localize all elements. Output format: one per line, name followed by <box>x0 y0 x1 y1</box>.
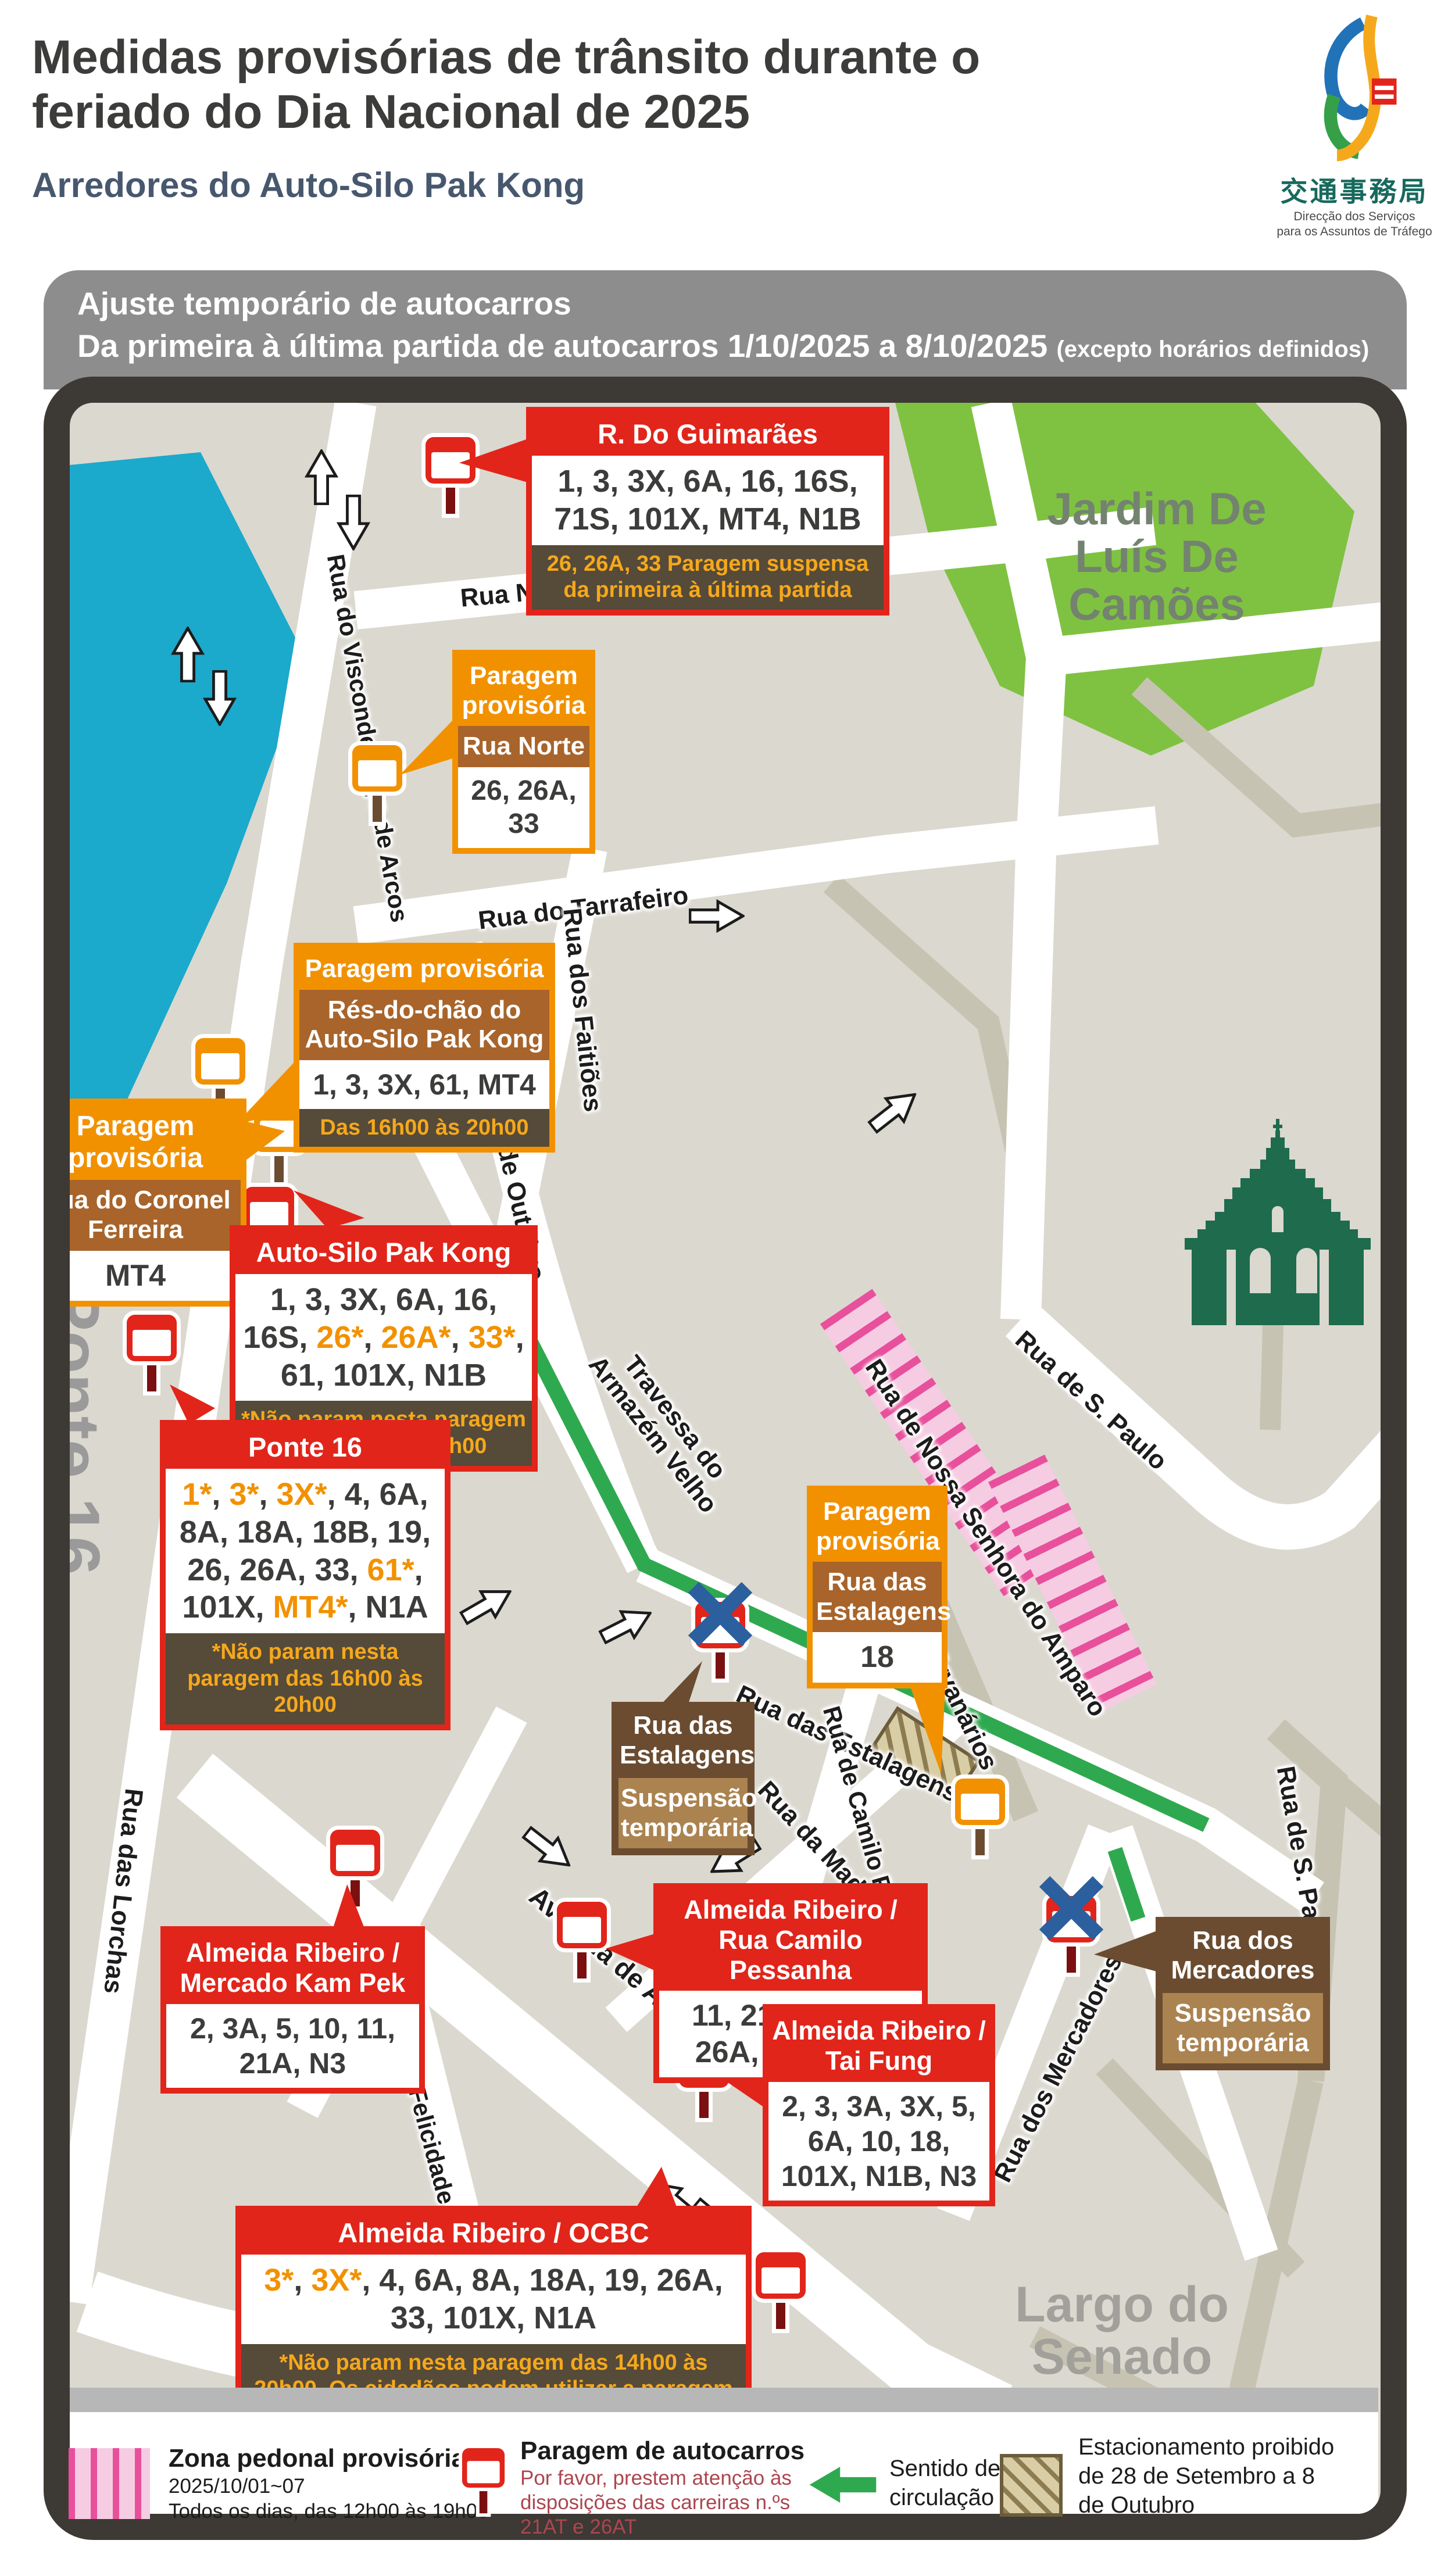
callout-routes: 1, 3, 3X, 6A, 16, 16S, 26*, 26A*, 33*, 6… <box>235 1274 532 1401</box>
suspended-bus-stop-icon <box>1046 1896 1096 1977</box>
callout-title: Rua dos Mercadores <box>1163 1924 1323 1987</box>
callout-street: Rua Norte <box>458 726 589 767</box>
bus-stop-icon <box>426 437 475 518</box>
direction-arrow-icon <box>335 495 371 550</box>
callout-routes: 1, 3, 3X, 6A, 16, 16S, 71S, 101X, MT4, N… <box>532 456 884 545</box>
bus-stop-icon <box>330 1830 380 1911</box>
temp-bus-stop-icon <box>955 1779 1005 1860</box>
bus-stop-icon <box>557 1902 607 1983</box>
legend-estacionamento-line2: de 28 de Setembro a 8 <box>1078 2461 1334 2491</box>
callout-estalagens-18: Paragem provisória Rua das Estalagens 18 <box>807 1486 948 1688</box>
callout-rua-norte: Paragem provisória Rua Norte 26, 26A, 33 <box>452 650 595 854</box>
bus-stop-legend-icon <box>462 2448 505 2517</box>
callout-street: Rés-do-chão do Auto-Silo Pak Kong <box>299 990 549 1060</box>
legend-paragem-note1: Por favor, prestem atenção às <box>520 2466 805 2491</box>
page-subtitle: Arredores do Auto-Silo Pak Kong <box>32 165 585 205</box>
no-parking-swatch <box>1000 2454 1063 2517</box>
legend-paragem: Paragem de autocarros Por favor, prestem… <box>520 2437 805 2539</box>
bus-stop-icon <box>127 1315 177 1396</box>
callout-title: Paragem provisória <box>299 949 549 990</box>
page-title-line2: feriado do Dia Nacional de 2025 <box>32 88 750 136</box>
callout-status: Suspensão temporária <box>618 1778 748 1848</box>
callout-kam-pek: Almeida Ribeiro / Mercado Kam Pek 2, 3A,… <box>160 1926 425 2094</box>
suspended-bus-stop-icon <box>695 1602 745 1683</box>
callout-coronel-ferreira: Paragem provisória Rua do Coronel Ferrei… <box>44 1099 246 1307</box>
callout-estalagens-suspensao: Rua das Estalagens Suspensão temporária <box>612 1702 755 1855</box>
dsat-logo-pt2: para os Assuntos de Tráfego <box>1276 224 1433 239</box>
callout-title: R. Do Guimarães <box>532 413 884 456</box>
callout-title: Paragem provisória <box>458 656 589 726</box>
ponte16-area-label: Ponte 16 <box>44 1285 112 1575</box>
largo-senado-label: Largo doSenado <box>953 2278 1290 2384</box>
callout-title: Almeida Ribeiro / Tai Fung <box>768 2010 989 2082</box>
banner-line2: Da primeira à última partida de autocarr… <box>77 327 1369 364</box>
direction-arrow-icon <box>689 898 745 934</box>
legend-sentido-line2: circulação <box>889 2483 1000 2512</box>
callout-title: Paragem provisória <box>44 1104 241 1180</box>
notice-banner: Ajuste temporário de autocarros Da prime… <box>44 270 1407 389</box>
legend-paragem-note3: 21AT e 26AT <box>520 2515 805 2539</box>
temp-bus-stop-icon <box>352 745 402 827</box>
legend-divider <box>70 2388 1378 2412</box>
page-title-line1: Medidas provisórias de trânsito durante … <box>32 34 980 81</box>
map: Jardim DeLuís DeCamões Ponte 16 Largo do… <box>44 377 1407 2540</box>
callout-title: Almeida Ribeiro / Rua Camilo Pessanha <box>659 1889 922 1991</box>
callout-title: Ponte 16 <box>166 1426 445 1469</box>
pedestrian-zone-swatch <box>69 2448 150 2519</box>
traffic-notice-poster: Medidas provisórias de trânsito durante … <box>0 0 1448 2576</box>
banner-line1: Ajuste temporário de autocarros <box>77 285 571 322</box>
legend-estacionamento-line3: de Outubro <box>1078 2491 1334 2520</box>
callout-note: Das 16h00 às 20h00 <box>299 1109 549 1147</box>
legend-zona-title: Zona pedonal provisória <box>169 2444 489 2474</box>
callout-status: Suspensão temporária <box>1163 1993 1323 2063</box>
callout-routes: 1, 3, 3X, 61, MT4 <box>299 1060 549 1109</box>
callout-ponte16: Ponte 16 1*, 3*, 3X*, 4, 6A, 8A, 18A, 18… <box>160 1420 451 1730</box>
callout-title: Almeida Ribeiro / Mercado Kam Pek <box>166 1932 419 2004</box>
callout-title: Auto-Silo Pak Kong <box>235 1231 532 1274</box>
callout-routes: 2, 3A, 5, 10, 11, 21A, N3 <box>166 2004 419 2088</box>
dsat-logo: 交通事務局 Direcção dos Serviços para os Assu… <box>1276 15 1433 240</box>
callout-note: *Não param nesta paragem das 16h00 às 20… <box>166 1633 445 1725</box>
banner-line2-main: Da primeira à última partida de autocarr… <box>77 328 1056 364</box>
legend-zona-line2: Todos os dias, das 12h00 às 19h00 <box>169 2499 489 2524</box>
bus-stop-icon <box>756 2252 806 2334</box>
callout-title: Almeida Ribeiro / OCBC <box>241 2212 746 2255</box>
callout-title: Paragem provisória <box>813 1491 942 1562</box>
legend-estacionamento: Estacionamento proibido de 28 de Setembr… <box>1078 2432 1334 2520</box>
callout-routes: 2, 3, 3A, 3X, 5, 6A, 10, 18, 101X, N1B, … <box>768 2082 989 2201</box>
park-label: Jardim DeLuís DeCamões <box>1023 485 1290 628</box>
direction-arrow-icon <box>202 670 238 726</box>
ruins-st-paul-icon <box>1185 1119 1371 1325</box>
callout-routes: 18 <box>813 1632 942 1682</box>
callout-title: Rua das Estalagens <box>618 1709 748 1772</box>
direction-arrow-icon <box>303 449 339 505</box>
callout-res-do-chao: Paragem provisória Rés-do-chão do Auto-S… <box>294 943 555 1153</box>
dsat-logo-chinese: 交通事務局 <box>1276 169 1433 209</box>
callout-routes: 3*, 3X*, 4, 6A, 8A, 18A, 19, 26A, 33, 10… <box>241 2255 746 2344</box>
callout-tai-fung: Almeida Ribeiro / Tai Fung 2, 3, 3A, 3X,… <box>763 2004 995 2206</box>
legend-zona: Zona pedonal provisória 2025/10/01~07 To… <box>169 2444 489 2524</box>
legend-estacionamento-line1: Estacionamento proibido <box>1078 2432 1334 2461</box>
callout-guimaraes: R. Do Guimarães 1, 3, 3X, 6A, 16, 16S, 7… <box>526 407 889 616</box>
callout-street: Rua do Coronel Ferreira <box>44 1180 241 1250</box>
callout-mercadores-suspensao: Rua dos Mercadores Suspensão temporária <box>1156 1917 1330 2070</box>
legend-zona-line1: 2025/10/01~07 <box>169 2474 489 2499</box>
legend-paragem-note2: disposições das carreiras n.ºs <box>520 2491 805 2515</box>
direction-arrow-icon <box>170 627 206 682</box>
banner-line2-small: (excepto horários definidos) <box>1056 337 1369 362</box>
callout-street: Rua das Estalagens <box>813 1562 942 1632</box>
legend-sentido-line1: Sentido de <box>889 2454 1000 2483</box>
dsat-logo-icon <box>1305 15 1404 163</box>
circulation-arrow-icon <box>808 2463 878 2506</box>
legend-sentido: Sentido de circulação <box>889 2454 1000 2512</box>
callout-note: 26, 26A, 33 Paragem suspensa da primeira… <box>532 545 884 610</box>
legend-paragem-title: Paragem de autocarros <box>520 2437 805 2466</box>
callout-routes: 26, 26A, 33 <box>458 767 589 848</box>
dsat-logo-pt1: Direcção dos Serviços <box>1276 209 1433 224</box>
callout-routes: 1*, 3*, 3X*, 4, 6A, 8A, 18A, 18B, 19, 26… <box>166 1469 445 1633</box>
callout-routes: MT4 <box>44 1251 241 1301</box>
